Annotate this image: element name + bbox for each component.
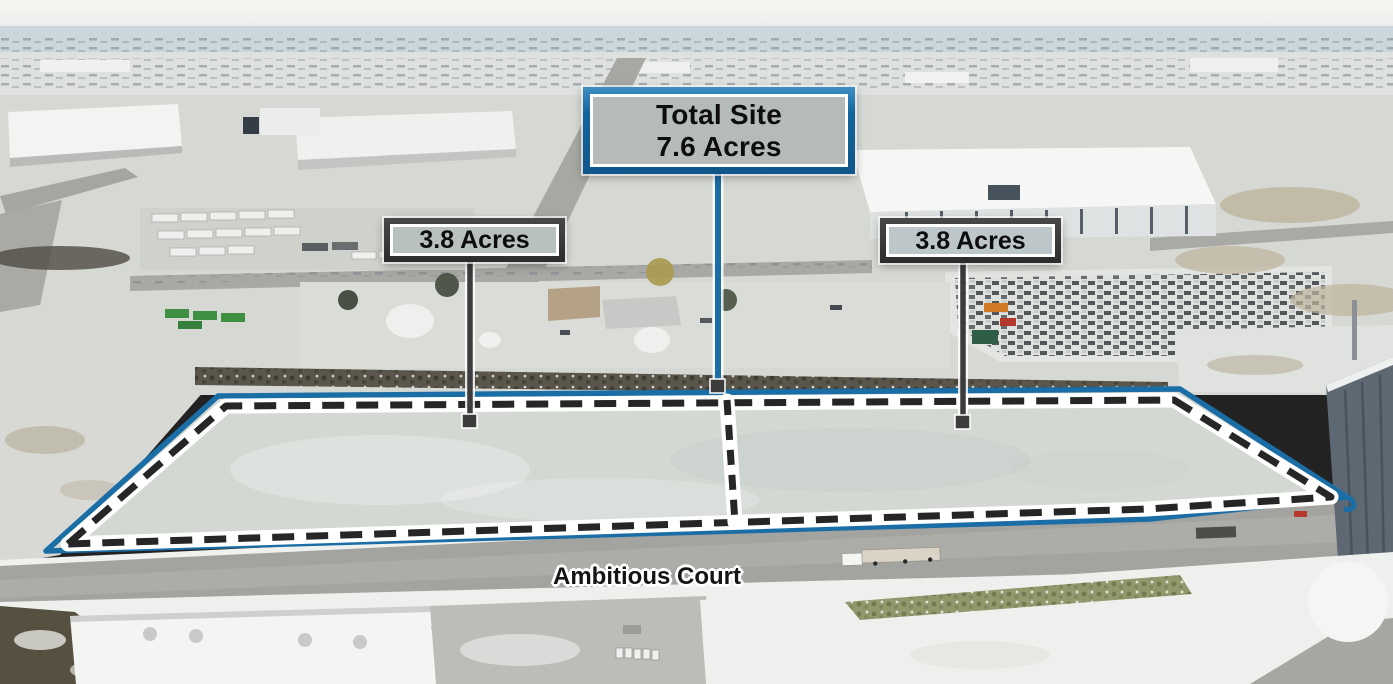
total-leader-cap (710, 379, 725, 393)
total-site-panel: Total Site 7.6 Acres (590, 94, 848, 167)
large-warehouse-roof (852, 147, 1216, 212)
round-pad (1308, 562, 1388, 642)
warehouse-glass-entry (988, 185, 1020, 200)
right-parcel-acreage: 3.8 Acres (915, 227, 1025, 255)
right-leader-cap (955, 415, 970, 429)
white-dome (634, 327, 670, 353)
vehicle (830, 305, 842, 310)
small-structures-row (616, 648, 659, 660)
vehicle (700, 318, 712, 323)
snow-mottle (1010, 450, 1190, 490)
crane-mast (1352, 300, 1357, 360)
gray-warehouse (602, 296, 681, 329)
left-leader-cap (462, 414, 477, 428)
vehicle (560, 330, 570, 335)
red-car (1294, 511, 1307, 517)
distant-building (40, 60, 130, 72)
left-parcel-callout: 3.8 Acres (384, 218, 565, 262)
brown-patch (5, 426, 85, 454)
left-parcel-acreage: 3.8 Acres (419, 226, 529, 254)
aerial-site-photo: Total Site 7.6 Acres 3.8 Acres 3.8 Acres… (0, 0, 1393, 684)
distant-building (1190, 58, 1278, 72)
left-parcel-panel: 3.8 Acres (390, 224, 559, 256)
tree (338, 290, 358, 310)
total-site-callout: Total Site 7.6 Acres (583, 87, 855, 174)
brown-patch (1207, 355, 1303, 375)
dark-building (243, 117, 259, 134)
snow-mottle (440, 478, 760, 522)
driveway (430, 596, 712, 684)
dark-truck (1196, 526, 1236, 538)
white-dome (386, 304, 434, 338)
orange-container (984, 303, 1008, 312)
green-shed (972, 330, 998, 344)
snow-patch (460, 634, 580, 666)
street-name-label: Ambitious Court (553, 563, 733, 591)
white-building (260, 108, 320, 135)
tree (435, 273, 459, 297)
snow-patch (14, 630, 66, 650)
right-parcel-panel: 3.8 Acres (886, 224, 1055, 257)
red-car (1000, 318, 1016, 326)
distant-building (905, 72, 969, 83)
total-site-acreage: 7.6 Acres (656, 131, 781, 162)
right-parcel-callout: 3.8 Acres (880, 218, 1061, 263)
beige-shed (548, 286, 600, 321)
yellow-tree (646, 258, 674, 286)
utility-box (623, 625, 641, 634)
total-site-title: Total Site (656, 99, 782, 130)
white-dome (479, 332, 501, 348)
snow-patch (910, 641, 1050, 669)
